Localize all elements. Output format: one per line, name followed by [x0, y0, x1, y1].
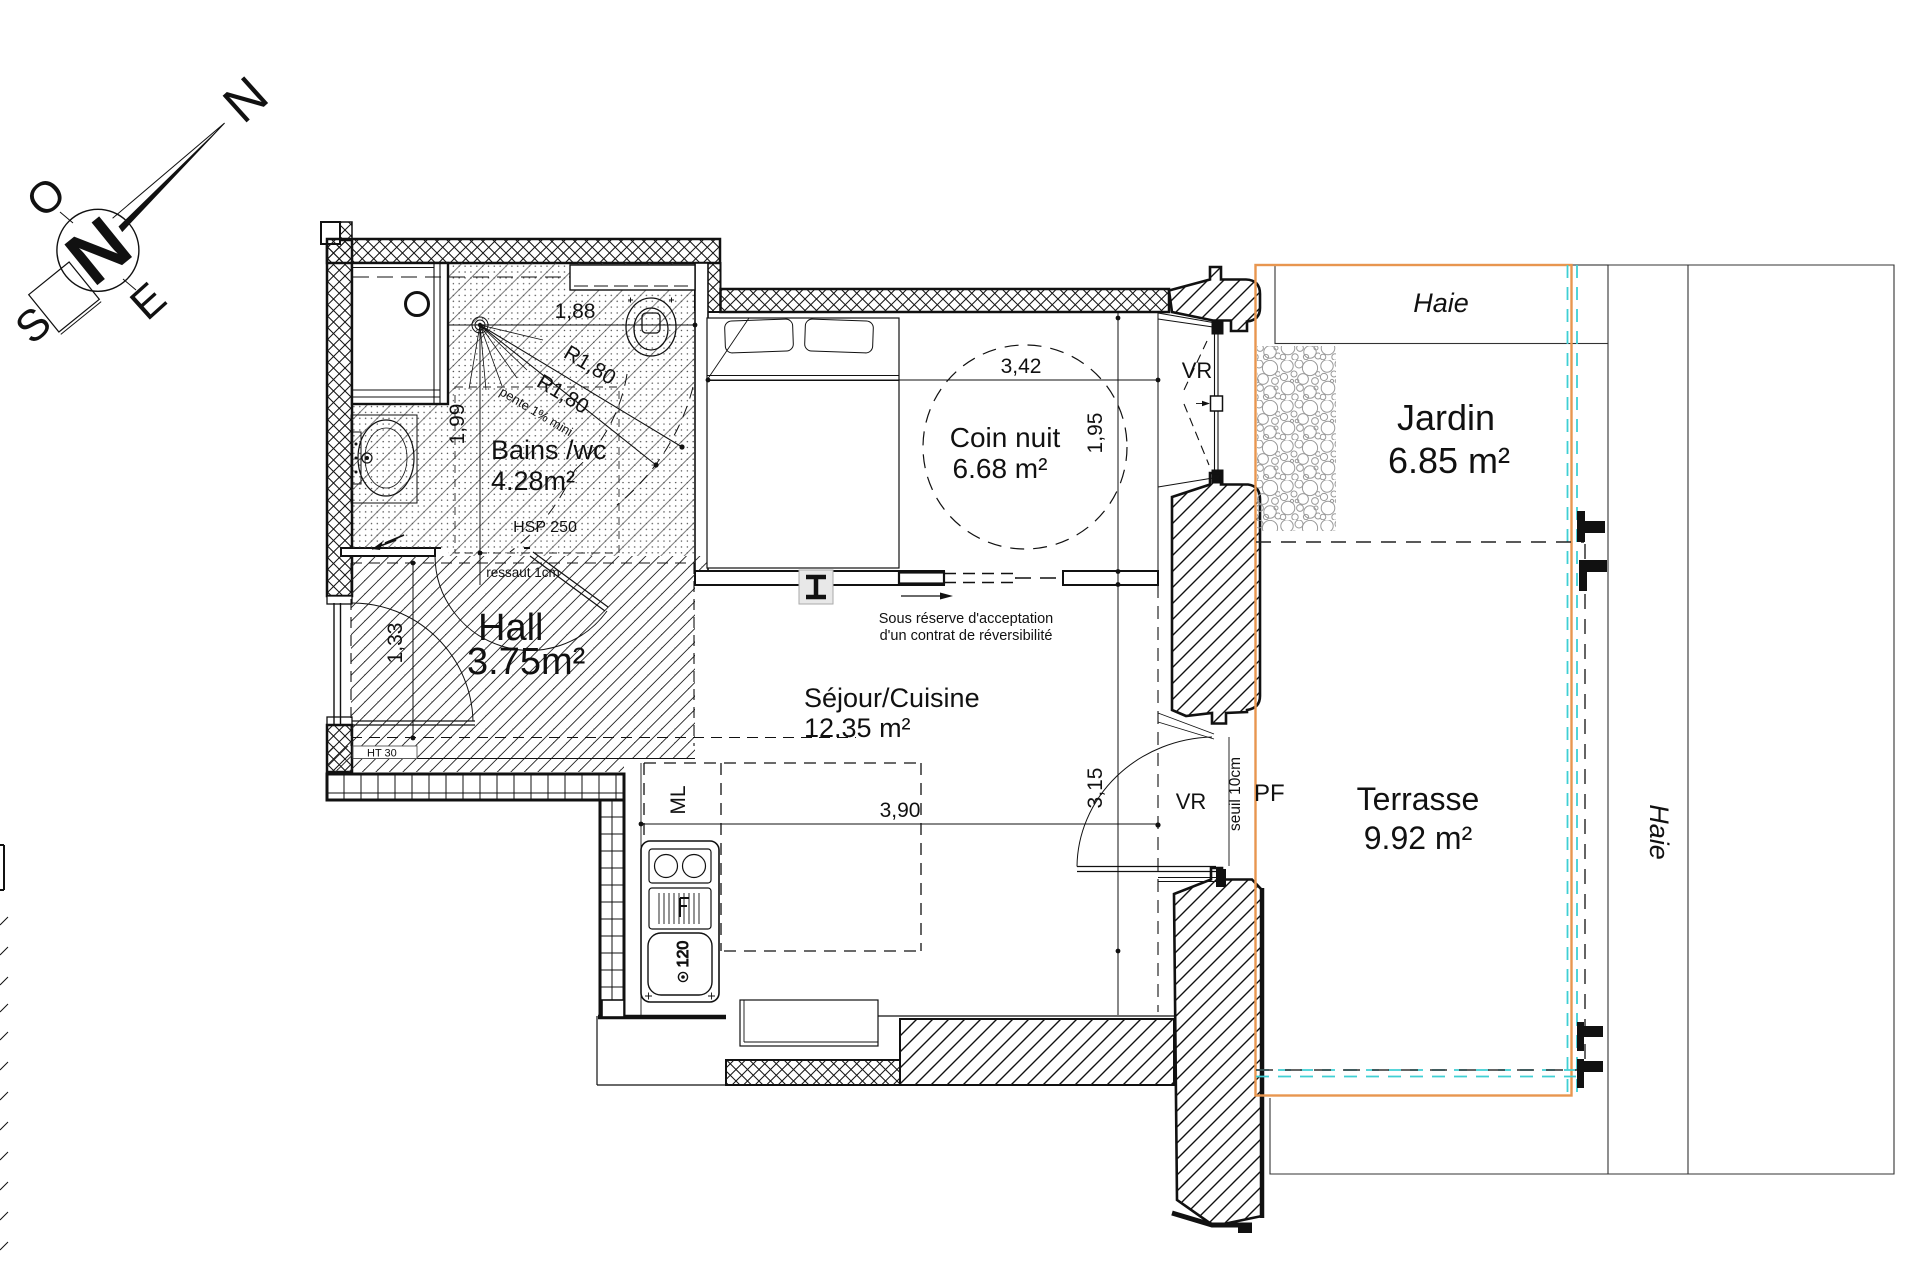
svg-text:4.28m²: 4.28m² — [491, 466, 575, 496]
svg-text:3,42: 3,42 — [1001, 355, 1042, 378]
svg-text:1,95: 1,95 — [1084, 413, 1107, 454]
svg-text:PF: PF — [1254, 780, 1285, 807]
svg-text:VR: VR — [1176, 789, 1207, 814]
svg-text:3,15: 3,15 — [1084, 768, 1107, 809]
svg-text:VR: VR — [1182, 358, 1213, 383]
svg-text:ML: ML — [667, 785, 690, 814]
svg-text:Coin nuit: Coin nuit — [950, 422, 1061, 453]
svg-text:Jardin: Jardin — [1397, 397, 1495, 438]
svg-text:d'un contrat de réversibilité: d'un contrat de réversibilité — [880, 628, 1053, 644]
svg-text:3,90: 3,90 — [880, 799, 921, 822]
svg-text:ressaut 1cm: ressaut 1cm — [486, 565, 560, 580]
svg-text:seuil 10cm: seuil 10cm — [1227, 757, 1244, 831]
svg-text:6.68 m²: 6.68 m² — [953, 453, 1048, 484]
svg-text:1,33: 1,33 — [384, 623, 407, 664]
svg-text:12.35 m²: 12.35 m² — [804, 713, 911, 743]
svg-text:120: 120 — [675, 941, 692, 968]
svg-text:6.85 m²: 6.85 m² — [1388, 440, 1510, 481]
svg-text:HSP 250: HSP 250 — [513, 519, 577, 536]
svg-text:Bains /wc: Bains /wc — [491, 435, 607, 465]
svg-text:Haie: Haie — [1644, 804, 1674, 860]
svg-text:Séjour/Cuisine: Séjour/Cuisine — [804, 683, 980, 713]
svg-text:1,99: 1,99 — [446, 404, 469, 445]
svg-text:3.75m²: 3.75m² — [467, 641, 585, 683]
svg-text:Terrasse: Terrasse — [1357, 781, 1480, 817]
svg-text:Haie: Haie — [1413, 288, 1469, 318]
svg-text:HT 30: HT 30 — [367, 748, 397, 760]
svg-text:Sous réserve d'acceptation: Sous réserve d'acceptation — [879, 611, 1053, 627]
svg-text:9.92 m²: 9.92 m² — [1364, 820, 1473, 856]
svg-text:1,88: 1,88 — [555, 300, 596, 323]
